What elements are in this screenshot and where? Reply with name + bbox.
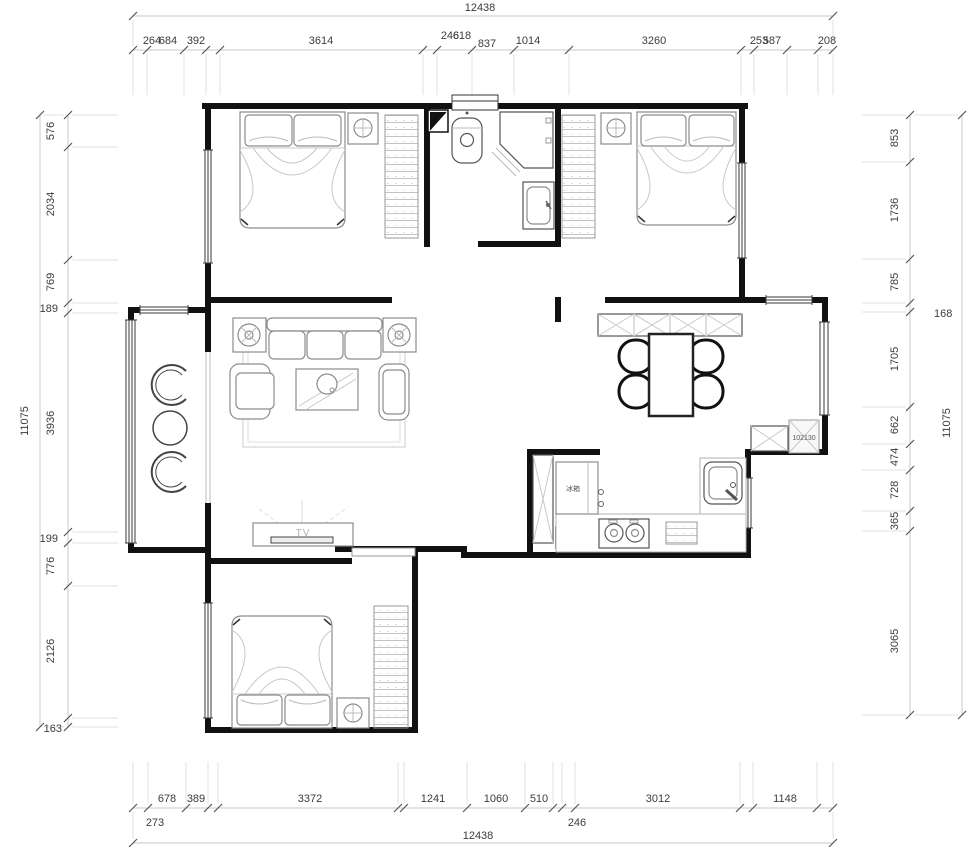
dim-left-total: 11075 (19, 406, 31, 436)
dim-label: 3614 (309, 35, 333, 47)
dim-label: 776 (45, 557, 57, 575)
bedroom-bottom-left (232, 606, 408, 728)
dim-label: 662 (889, 416, 901, 434)
dimension-left: 11075 576 2034 769 3936 776 2126 189 199… (19, 111, 118, 735)
stove (599, 519, 649, 548)
dining-table (649, 334, 693, 416)
fridge: 冰箱 (556, 462, 604, 514)
dim-label: 853 (889, 129, 901, 147)
pillow (689, 115, 734, 146)
tv-screen (271, 537, 333, 543)
dim-label: 208 (818, 35, 836, 47)
nightstand (337, 698, 369, 728)
sink (704, 462, 742, 504)
dim-label: 3012 (646, 793, 670, 805)
dim-label: 1060 (484, 793, 508, 805)
nook-cabinets: 102130 (751, 420, 819, 453)
shaft-bathroom (428, 110, 448, 132)
pillow (245, 115, 292, 146)
coffee-table (296, 369, 358, 410)
dim-label: 1736 (889, 198, 901, 222)
dim-label: 1148 (773, 793, 797, 805)
window-balcony-north (140, 304, 188, 316)
window-bathroom-north (452, 95, 498, 110)
counter-south (556, 514, 746, 552)
dim-label: 163 (44, 723, 62, 735)
dim-bottom-total: 12438 (463, 830, 494, 842)
balcony (152, 365, 187, 492)
window-balcony-west (124, 320, 138, 543)
side-table-plant-right (383, 318, 416, 352)
dim-label: 728 (889, 481, 901, 499)
dim-label: 3936 (45, 411, 57, 435)
wardrobe (385, 115, 418, 238)
living-room: TV (230, 318, 416, 546)
window-dining-north (766, 294, 812, 306)
washbasin (523, 182, 554, 229)
dim-label: 769 (45, 273, 57, 291)
window-bedroom1-west (202, 150, 214, 263)
dim-label: 785 (889, 273, 901, 291)
balcony-sliding-track (206, 352, 210, 503)
dim-label: 474 (889, 448, 901, 466)
dim-label: 3372 (298, 793, 322, 805)
dim-label: 2126 (45, 639, 57, 663)
balcony-chair (152, 452, 186, 492)
nook-note: 102130 (792, 435, 815, 442)
pillow (294, 115, 341, 146)
dim-top-total: 12438 (465, 2, 496, 14)
window-dining-bay-east (818, 322, 831, 415)
dim-label: 576 (45, 122, 57, 140)
armchair-right (379, 364, 409, 420)
dim-label: 510 (530, 793, 548, 805)
dim-label: 678 (158, 793, 176, 805)
dim-label: 2034 (45, 192, 57, 216)
kitchen: 冰箱 (533, 455, 746, 552)
dim-right-total: 11075 (941, 408, 953, 438)
cutting-board (666, 522, 697, 544)
floor-plan-drawing: 12438 264 684 392 3614 246 618 837 1014 … (0, 0, 975, 847)
pillow (641, 115, 686, 146)
armchair-left (230, 364, 274, 419)
dim-label: 273 (146, 817, 164, 829)
tv-wall: TV (253, 500, 353, 546)
dim-label: 189 (40, 303, 58, 315)
sofa (267, 318, 382, 359)
dim-label: 168 (934, 308, 952, 320)
dimension-right: 853 1736 785 1705 662 474 728 365 3065 1… (862, 111, 966, 719)
sideboard (598, 314, 742, 336)
floor-plan-canvas: 12438 264 684 392 3614 246 618 837 1014 … (0, 0, 975, 847)
dim-label: 246 (568, 817, 586, 829)
door-leaf-bedroom3 (352, 548, 415, 556)
dim-label: 1705 (889, 347, 901, 371)
dining-room: 102130 (598, 314, 819, 453)
nightstand (348, 113, 378, 144)
wardrobe (374, 606, 408, 728)
dimension-top: 12438 264 684 392 3614 246 618 837 1014 … (129, 2, 837, 95)
dim-label: 365 (889, 512, 901, 530)
dim-label: 1241 (421, 793, 445, 805)
wardrobe (562, 115, 595, 238)
bedroom-top-left (240, 112, 418, 238)
pillow (237, 695, 282, 725)
side-table-plant-left (233, 318, 266, 352)
window-bedroom2-east (736, 163, 748, 258)
balcony-chair (152, 365, 186, 405)
dim-label: 1014 (516, 35, 540, 47)
dim-label: 3260 (642, 35, 666, 47)
bedroom-top-right (562, 112, 736, 238)
pillow (285, 695, 330, 725)
dim-label: 618 (453, 30, 471, 42)
bathroom (452, 112, 554, 230)
dimension-bottom: 678 389 3372 1241 1060 510 3012 1148 273… (129, 762, 837, 847)
dim-label: 389 (187, 793, 205, 805)
dim-label: 3065 (889, 629, 901, 653)
balcony-table (153, 411, 187, 445)
fridge-label: 冰箱 (566, 484, 580, 493)
dim-label: 684 (159, 35, 177, 47)
shower (492, 112, 553, 176)
dim-label: 199 (40, 533, 58, 545)
dim-label: 837 (478, 38, 496, 50)
dim-label: 587 (763, 35, 781, 47)
nightstand (601, 113, 631, 144)
tall-cabinet (533, 455, 553, 543)
dim-label: 392 (187, 35, 205, 47)
window-bedroom3-west (202, 603, 214, 718)
toilet (452, 112, 482, 164)
